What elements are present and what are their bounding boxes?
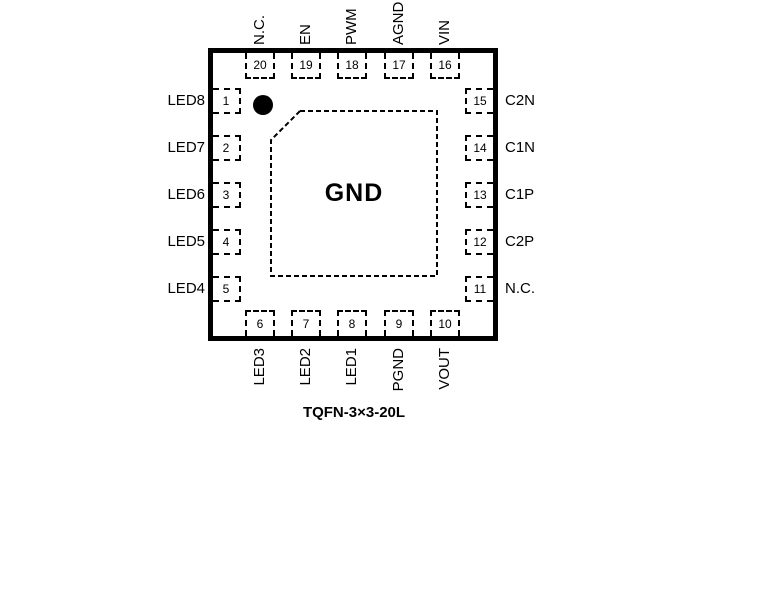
pin-label-4: LED5 [105,233,205,251]
package-name: TQFN-3×3-20L [254,404,454,421]
pin-box-3: 3 [213,182,241,208]
pin-box-4: 4 [213,229,241,255]
pin-number: 15 [473,95,486,107]
pin-box-14: 14 [465,135,493,161]
pin-box-12: 12 [465,229,493,255]
pin-number: 17 [392,59,405,71]
pin-label-17: AGND [391,0,407,45]
pin-box-8: 8 [337,310,367,336]
pin-number: 13 [473,189,486,201]
pin-label-18: PWM [344,0,360,45]
pin-number: 3 [223,189,230,201]
pin1-marker-icon [253,95,273,115]
pin-number: 5 [223,283,230,295]
pin-label-2: LED7 [105,139,205,157]
pin-label-9: PGND [391,348,407,408]
pin-number: 10 [438,318,451,330]
pin-box-9: 9 [384,310,414,336]
pin-number: 19 [299,59,312,71]
pin-label-13: C1P [505,186,605,204]
pin-label-12: C2P [505,233,605,251]
pin-box-2: 2 [213,135,241,161]
pin-label-16: VIN [437,0,453,45]
pin-number: 14 [473,142,486,154]
pin-box-1: 1 [213,88,241,114]
pin-box-16: 16 [430,53,460,79]
pin-box-19: 19 [291,53,321,79]
pinout-diagram: GND 20 19 18 17 16 N.C. EN PWM AGND VIN … [0,0,771,616]
pin-number: 18 [345,59,358,71]
pin-number: 7 [303,318,310,330]
pin-number: 9 [396,318,403,330]
pin-box-18: 18 [337,53,367,79]
pin-number: 8 [349,318,356,330]
pin-number: 2 [223,142,230,154]
pin-box-10: 10 [430,310,460,336]
pin-box-5: 5 [213,276,241,302]
pin-box-17: 17 [384,53,414,79]
pin-label-1: LED8 [105,92,205,110]
pin-box-15: 15 [465,88,493,114]
pin-number: 11 [474,283,486,295]
pin-label-14: C1N [505,139,605,157]
center-pad-label: GND [270,110,438,277]
pin-label-19: EN [298,0,314,45]
pin-number: 20 [253,59,266,71]
pin-label-15: C2N [505,92,605,110]
pin-label-11: N.C. [505,280,605,298]
pin-label-20: N.C. [252,0,268,45]
pin-box-7: 7 [291,310,321,336]
pin-box-11: 11 [465,276,493,302]
pin-label-10: VOUT [437,348,453,408]
pin-number: 1 [223,95,230,107]
pin-label-5: LED4 [105,280,205,298]
pin-number: 16 [438,59,451,71]
pin-label-6: LED3 [252,348,268,408]
pin-number: 12 [473,236,486,248]
pin-number: 4 [223,236,230,248]
pin-box-13: 13 [465,182,493,208]
pin-box-6: 6 [245,310,275,336]
pin-label-8: LED1 [344,348,360,408]
pin-label-3: LED6 [105,186,205,204]
pin-number: 6 [257,318,264,330]
pin-box-20: 20 [245,53,275,79]
pin-label-7: LED2 [298,348,314,408]
